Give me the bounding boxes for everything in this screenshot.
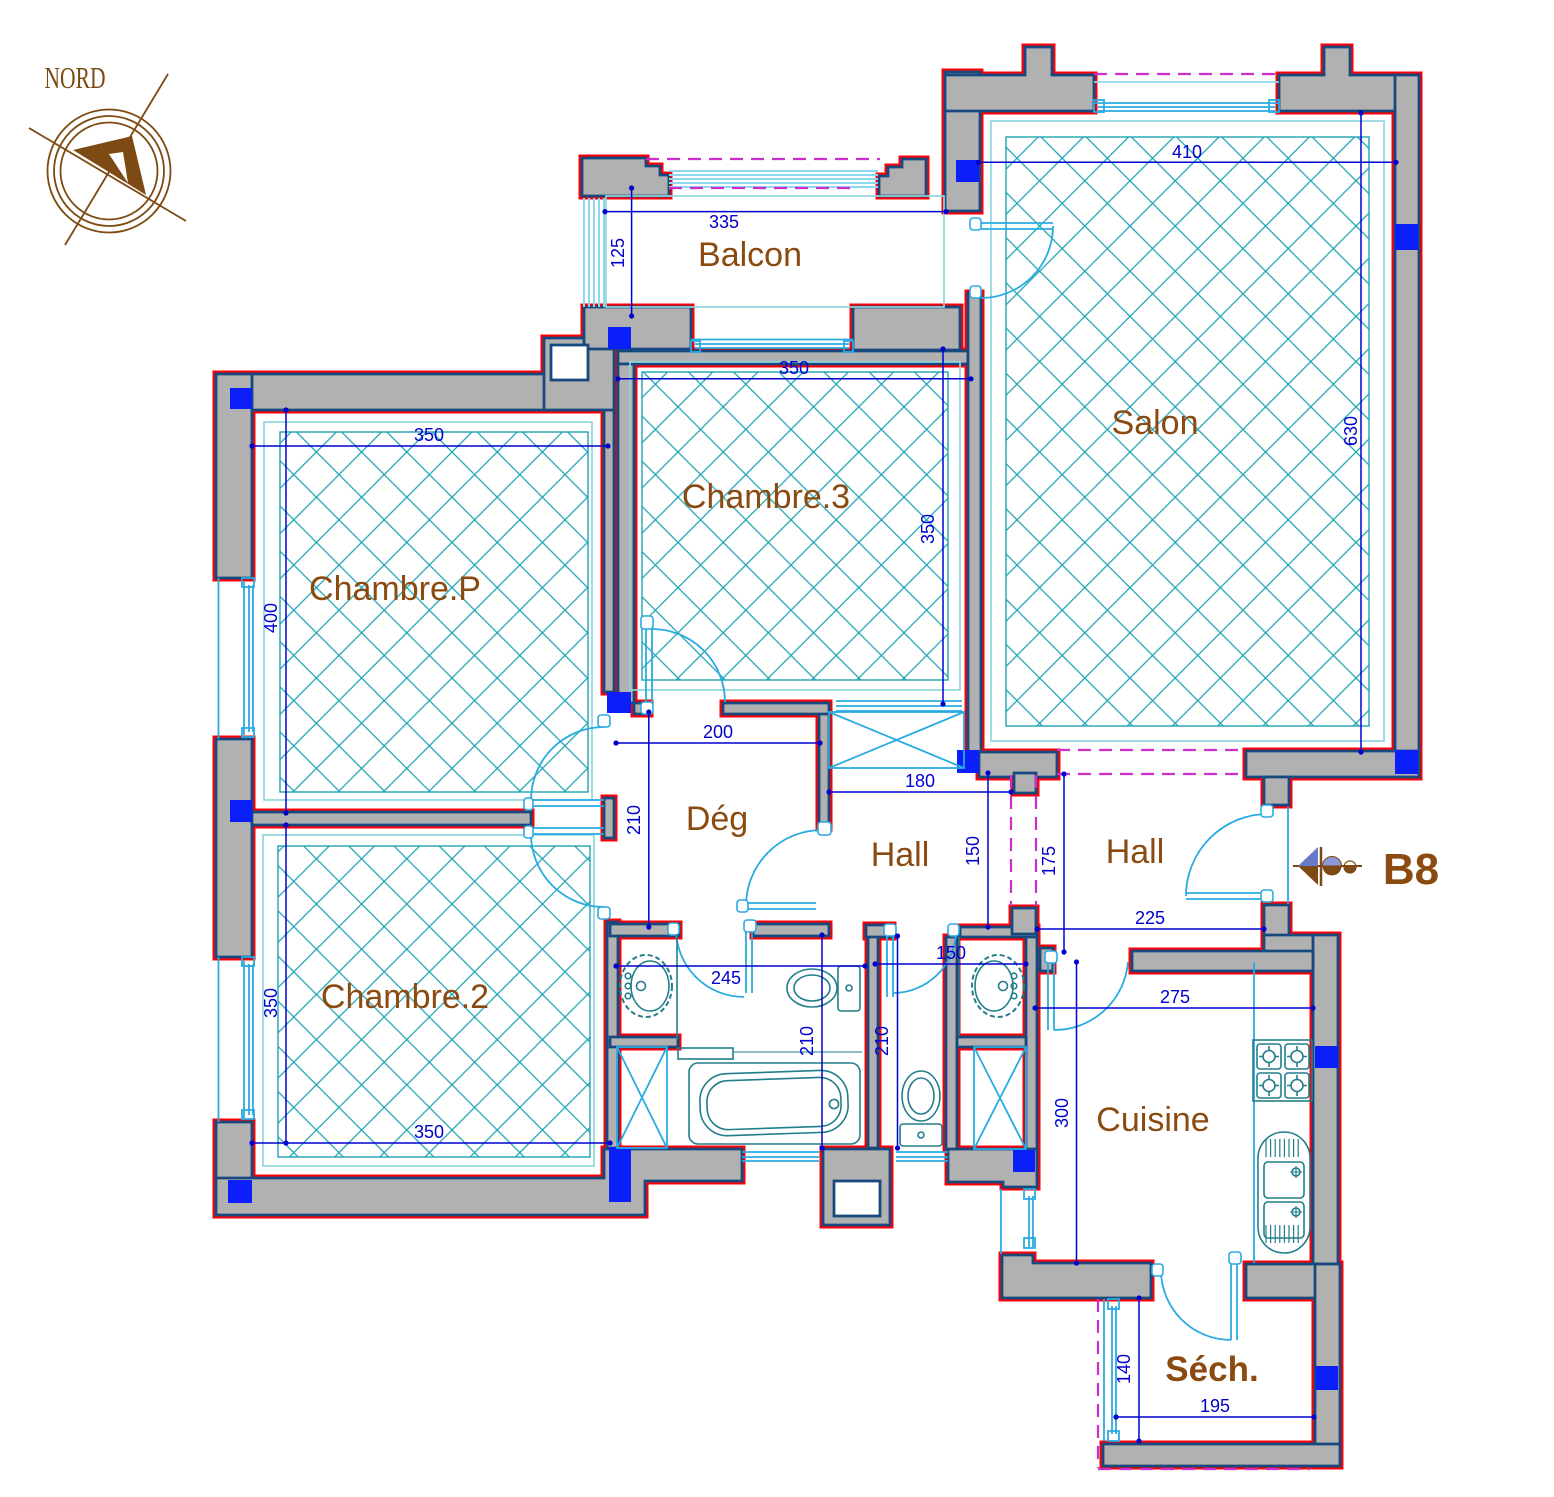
svg-text:Cuisine: Cuisine: [1096, 1101, 1209, 1139]
svg-text:Séch.: Séch.: [1165, 1350, 1258, 1389]
svg-text:400: 400: [261, 603, 281, 633]
svg-text:140: 140: [1114, 1354, 1134, 1384]
svg-text:245: 245: [711, 968, 741, 988]
svg-text:Salon: Salon: [1112, 404, 1199, 442]
svg-text:Chambre.P: Chambre.P: [309, 570, 481, 608]
svg-text:B8: B8: [1383, 845, 1439, 894]
svg-text:125: 125: [608, 238, 628, 268]
svg-text:Dég: Dég: [686, 800, 748, 838]
svg-text:Chambre.2: Chambre.2: [321, 978, 489, 1016]
svg-text:Hall: Hall: [1106, 833, 1165, 871]
svg-text:210: 210: [624, 805, 644, 835]
svg-text:630: 630: [1341, 416, 1361, 446]
svg-text:200: 200: [703, 722, 733, 742]
svg-text:Chambre.3: Chambre.3: [682, 478, 850, 516]
svg-text:410: 410: [1172, 142, 1202, 162]
svg-text:Balcon: Balcon: [698, 236, 802, 274]
svg-text:350: 350: [414, 425, 444, 445]
svg-text:NORD: NORD: [45, 60, 106, 95]
svg-text:210: 210: [872, 1026, 892, 1056]
svg-text:350: 350: [779, 358, 809, 378]
svg-text:275: 275: [1160, 987, 1190, 1007]
svg-text:Hall: Hall: [871, 836, 930, 874]
svg-text:350: 350: [414, 1122, 444, 1142]
svg-text:300: 300: [1052, 1098, 1072, 1128]
svg-text:195: 195: [1200, 1396, 1230, 1416]
svg-text:350: 350: [261, 988, 281, 1018]
svg-text:225: 225: [1135, 908, 1165, 928]
svg-text:175: 175: [1039, 846, 1059, 876]
svg-text:180: 180: [905, 771, 935, 791]
svg-text:210: 210: [797, 1026, 817, 1056]
svg-text:350: 350: [918, 514, 938, 544]
svg-text:150: 150: [963, 836, 983, 866]
svg-text:150: 150: [936, 943, 966, 963]
svg-text:335: 335: [709, 212, 739, 232]
